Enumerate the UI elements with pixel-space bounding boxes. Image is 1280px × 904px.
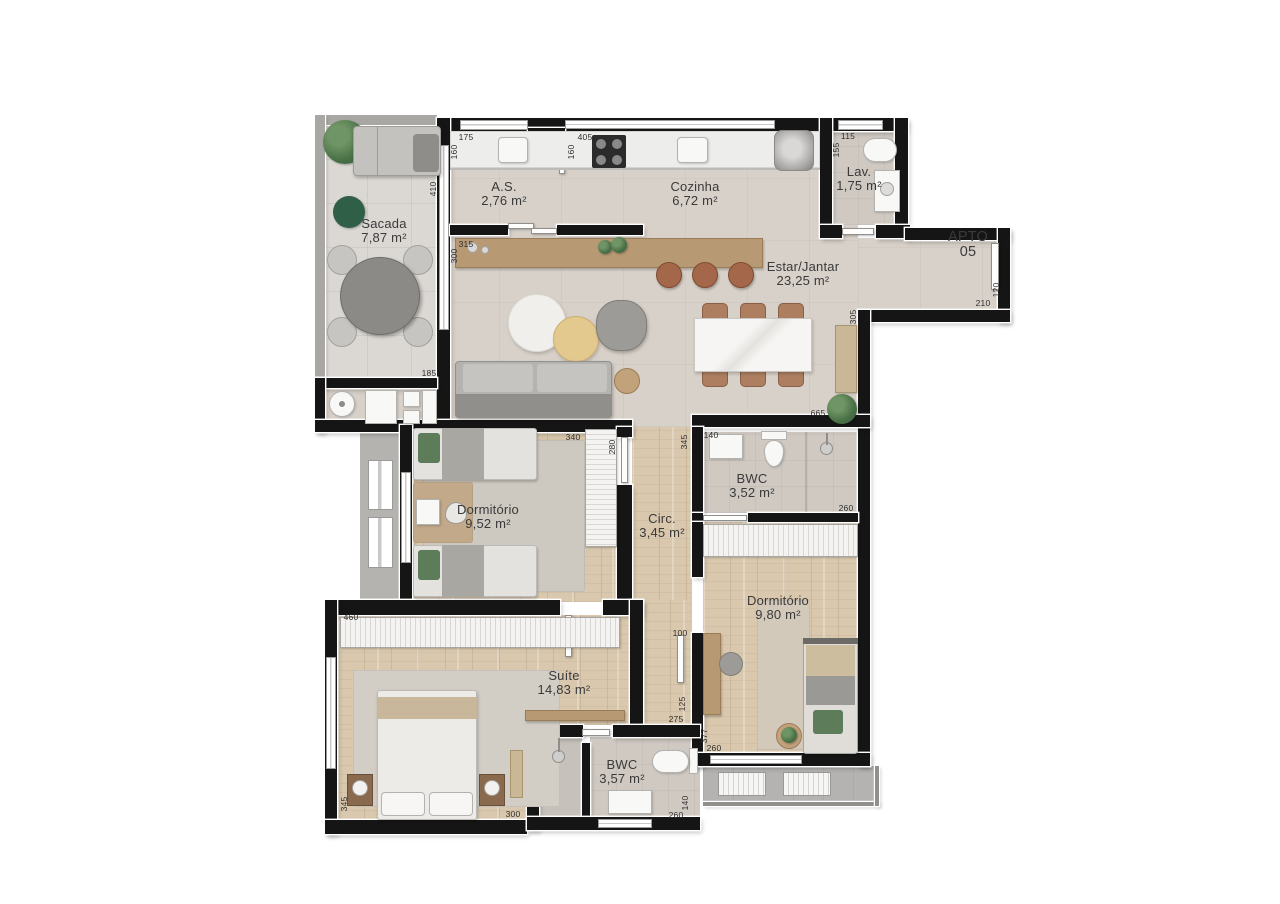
wall-dorm1-corridor-top [617, 427, 632, 437]
dimension-label: 305 [848, 310, 858, 325]
dimension-label: 345 [679, 435, 689, 450]
room-area: 3,57 m² [599, 772, 644, 786]
sofa-estar-cushion-1 [463, 364, 533, 392]
nook-sink-drain [339, 401, 345, 407]
apto-line2: 05 [948, 245, 988, 260]
room-name: Dormitório [747, 594, 809, 608]
dining-table [694, 318, 812, 372]
stool-3 [728, 262, 754, 288]
bed-suite-throw [377, 697, 477, 719]
room-label-dormitorio-2: Dormitório 9,80 m² [747, 594, 809, 621]
door-lavabo [842, 228, 874, 235]
pouf-sacada [333, 196, 365, 228]
dimension-label: 300 [449, 249, 459, 264]
coffee-table-yellow [553, 316, 599, 362]
shower-arm-bwc-social [826, 433, 828, 445]
stove-burner-1 [596, 139, 606, 149]
window-bwc-suite [598, 819, 652, 828]
dimension-label: 260 [707, 743, 722, 753]
dimension-label: 340 [566, 432, 581, 442]
wall-cozinha-lav-divider [820, 118, 832, 225]
room-label-estar-jantar: Estar/Jantar 23,25 m² [767, 260, 840, 287]
window-dorm2-balcony-door [710, 755, 802, 764]
wall-as-estar-right [557, 225, 643, 235]
dimension-label: 410 [428, 182, 438, 197]
plant-dormitorio-2 [781, 727, 797, 743]
dimension-label: 185 [422, 368, 437, 378]
window-suite [326, 657, 336, 769]
dimension-label: 140 [704, 430, 719, 440]
sofa-estar-back [455, 394, 612, 418]
wardrobe-dormitorio-2 [703, 524, 858, 557]
toilet-tank-bwc-suite [689, 748, 698, 774]
wall-bwc1-bottom-right [748, 513, 858, 522]
desk-chair-dormitorio-2 [719, 652, 743, 676]
door-bwc-suite [582, 729, 610, 736]
apartment-05-floorplan: Sacada 7,87 m² A.S. 2,76 m² Cozinha 6,72… [315, 112, 1015, 838]
room-area: 7,87 m² [361, 231, 406, 245]
ac-condenser-2 [783, 772, 831, 796]
room-area: 14,83 m² [538, 683, 591, 697]
room-label-cozinha: Cozinha 6,72 m² [670, 180, 719, 207]
lavabo-toilet [863, 138, 897, 162]
room-area: 3,52 m² [729, 486, 774, 500]
wall-dorm2-left-upper [692, 522, 703, 577]
stove-burner-2 [612, 139, 622, 149]
dimension-label: 275 [669, 714, 684, 724]
room-name: A.S. [481, 180, 526, 194]
shower-arm-bwc-suite [558, 738, 560, 752]
room-name: Dormitório [457, 503, 519, 517]
dimension-label: 175 [459, 132, 474, 142]
room-name: Cozinha [670, 180, 719, 194]
wall-dorm2-left-lower [692, 633, 703, 766]
room-area: 9,80 m² [747, 608, 809, 622]
bed-dorm1-b-blanket [442, 545, 484, 597]
island-decor-2 [481, 246, 489, 254]
nook-box-2 [403, 410, 420, 424]
dimension-label: 160 [449, 145, 459, 160]
room-label-lavabo: Lav. 1,75 m² [836, 165, 881, 192]
wall-right-main [858, 310, 870, 766]
room-area: 6,72 m² [670, 194, 719, 208]
room-label-suite: Suíte 14,83 m² [538, 669, 591, 696]
window-lav [838, 120, 883, 130]
sofa-sacada-seam [377, 126, 378, 176]
shower-glass-bwc-social [805, 432, 807, 512]
window-dorm1-wall [401, 472, 411, 563]
dimension-label: 160 [566, 145, 576, 160]
ac-condenser-1 [718, 772, 766, 796]
nook-box-3 [422, 390, 437, 424]
room-name: Circ. [639, 512, 684, 526]
lamp-suite-left [352, 780, 368, 796]
bench-suite [510, 750, 523, 798]
dimension-label: 300 [506, 809, 521, 819]
stool-2 [692, 262, 718, 288]
vanity-bwc-suite [608, 790, 652, 814]
sideboard-estar [835, 325, 857, 393]
dining-chair-5 [740, 370, 766, 387]
stove-burner-3 [596, 155, 606, 165]
dresser-suite [525, 710, 625, 721]
wall-bwc1-left [692, 427, 703, 513]
bed-dorm2-headframe [803, 638, 858, 644]
wall-entry-bottom [858, 310, 1010, 322]
island-plant-2 [611, 237, 627, 253]
window-dorm1-ledge-1 [368, 460, 393, 510]
room-name: BWC [729, 472, 774, 486]
dimension-label: 260 [669, 810, 684, 820]
dining-chair-4 [702, 370, 728, 387]
lamp-suite-right [484, 780, 500, 796]
wall-nook-top [315, 378, 437, 388]
bed-dorm1-b-pillow [418, 550, 440, 580]
toilet-tank-bwc-social [761, 431, 787, 440]
wall-dorm1-corridor-bottom [617, 485, 632, 602]
room-label-sacada: Sacada 7,87 m² [361, 217, 406, 244]
dimension-label: 120 [991, 283, 1001, 298]
dimension-label: 345 [339, 797, 349, 812]
railing-tech-right [875, 766, 879, 806]
floorplan-image: Sacada 7,87 m² A.S. 2,76 m² Cozinha 6,72… [0, 0, 1280, 904]
room-label-apto: APTO 05 [948, 230, 988, 260]
dimension-label: 405 [578, 132, 593, 142]
room-area: 1,75 m² [836, 179, 881, 193]
window-dorm1-ledge-2 [368, 517, 393, 568]
table-sacada [340, 257, 420, 335]
wardrobe-suite [340, 617, 620, 648]
apto-line1: APTO [948, 230, 988, 245]
wall-lav-bottom-left [820, 225, 842, 238]
as-tank-sink [498, 137, 528, 163]
armchair-estar [596, 300, 647, 351]
lavabo-basin [880, 182, 894, 196]
bed-suite-pillow-1 [381, 792, 425, 816]
room-area: 23,25 m² [767, 274, 840, 288]
stool-1 [656, 262, 682, 288]
room-name: Sacada [361, 217, 406, 231]
stove-burner-4 [612, 155, 622, 165]
nook-cabinet [365, 390, 397, 424]
wall-suite-top [325, 600, 560, 615]
wall-as-estar-left [450, 225, 508, 235]
dimension-label: 140 [680, 796, 690, 811]
sliding-door-as-panel-2 [531, 228, 557, 234]
bed-dorm2-pillow-zone [806, 645, 855, 676]
room-name: Suíte [538, 669, 591, 683]
dining-chair-6 [778, 370, 804, 387]
wall-suite-bottom [325, 820, 527, 834]
kitchen-sink [677, 137, 708, 163]
railing-tech-bottom [703, 802, 879, 806]
wall-suite-corridor-divider [630, 600, 643, 725]
room-label-circulacao: Circ. 3,45 m² [639, 512, 684, 539]
island-plant-1 [598, 240, 612, 254]
window-cozinha [565, 120, 775, 129]
door-bwc-social [703, 515, 747, 521]
wall-bwc2-shower-divider [582, 743, 590, 817]
dimension-label: 100 [673, 628, 688, 638]
wall-nook-bottom [315, 420, 412, 432]
room-label-bwc-social: BWC 3,52 m² [729, 472, 774, 499]
dimension-label: 460 [344, 612, 359, 622]
desk-dormitorio-2 [703, 633, 721, 715]
sofa-estar-cushion-2 [537, 364, 607, 392]
wall-bwc1-bottom-left [692, 513, 703, 522]
nook-box-1 [403, 391, 420, 407]
room-label-bwc-suite: BWC 3,57 m² [599, 758, 644, 785]
bed-dorm1-a-pillow [418, 433, 440, 463]
refrigerator [774, 130, 814, 171]
room-name: Lav. [836, 165, 881, 179]
bed-dorm2-green-pillow [813, 710, 843, 734]
room-area: 3,45 m² [639, 526, 684, 540]
door-dormitorio-2 [677, 635, 684, 683]
room-label-dormitorio-1: Dormitório 9,52 m² [457, 503, 519, 530]
dimension-label: 125 [677, 697, 687, 712]
room-label-as: A.S. 2,76 m² [481, 180, 526, 207]
door-dormitorio-1 [621, 437, 628, 483]
plant-estar [827, 394, 857, 424]
bed-dorm2-blanket [806, 676, 855, 705]
dimension-label: 665 [811, 408, 826, 418]
dimension-label: 260 [839, 503, 854, 513]
room-area: 9,52 m² [457, 517, 519, 531]
dimension-label: 155 [831, 143, 841, 158]
wall-entry-right [998, 228, 1010, 322]
dimension-label: 115 [841, 131, 855, 141]
bed-dorm1-a-blanket [442, 428, 484, 480]
side-table-estar [614, 368, 640, 394]
toilet-bwc-suite [652, 750, 689, 773]
dimension-label: 280 [607, 440, 617, 455]
window-as [460, 120, 528, 130]
room-name: Estar/Jantar [767, 260, 840, 274]
room-name: BWC [599, 758, 644, 772]
bed-suite-pillow-2 [429, 792, 473, 816]
sofa-sacada-pillow [413, 134, 439, 172]
railing-sacada-left [315, 115, 325, 388]
nightstand-dorm1 [416, 499, 440, 525]
dimension-label: 315 [459, 239, 474, 249]
wall-bwc2-top-right [613, 725, 700, 737]
dimension-label: 210 [976, 298, 991, 308]
room-area: 2,76 m² [481, 194, 526, 208]
dimension-label: 377 [699, 729, 709, 744]
